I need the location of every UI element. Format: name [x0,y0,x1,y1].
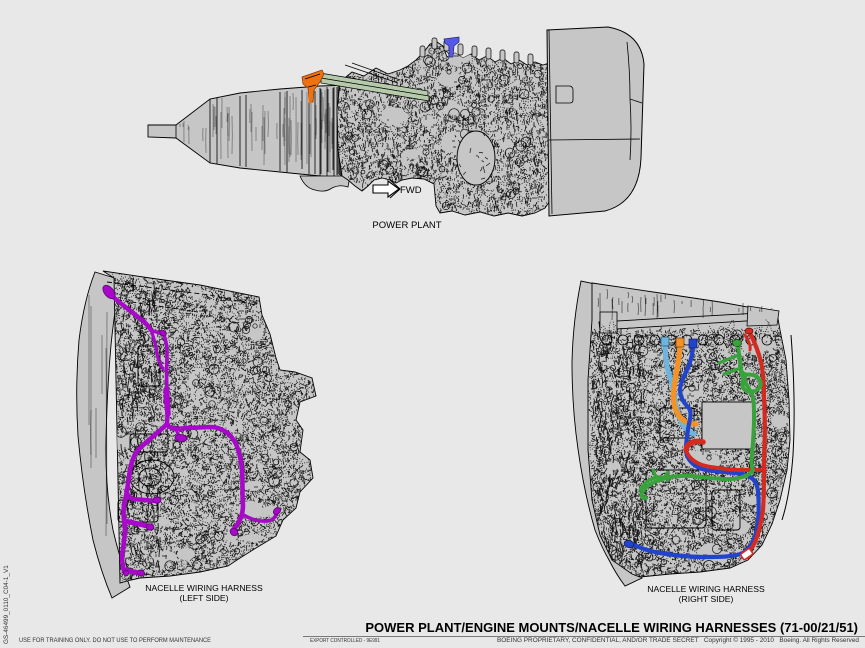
svg-text:FWD: FWD [400,185,422,196]
svg-text:POWER PLANT/ENGINE MOUNTS/NACE: POWER PLANT/ENGINE MOUNTS/NACELLE WIRING… [365,620,858,635]
svg-text:POWER PLANT: POWER PLANT [372,220,441,231]
svg-text:(LEFT SIDE): (LEFT SIDE) [179,593,228,603]
svg-text:NACELLE WIRING HARNESS: NACELLE WIRING HARNESS [145,583,263,593]
svg-text:NACELLE WIRING HARNESS: NACELLE WIRING HARNESS [647,584,765,594]
svg-text:EXPORT CONTROLLED - 9E991: EXPORT CONTROLLED - 9E991 [310,638,380,644]
svg-text:USE FOR TRAINING ONLY. DO NOT: USE FOR TRAINING ONLY. DO NOT USE TO PER… [19,638,211,644]
svg-text:GS-46499_0110_C04-1_V1: GS-46499_0110_C04-1_V1 [3,565,10,644]
svg-text:(RIGHT SIDE): (RIGHT SIDE) [679,594,734,604]
svg-text:BOEING PROPRIETARY, CONFIDENTI: BOEING PROPRIETARY, CONFIDENTIAL, AND/OR… [497,637,859,644]
